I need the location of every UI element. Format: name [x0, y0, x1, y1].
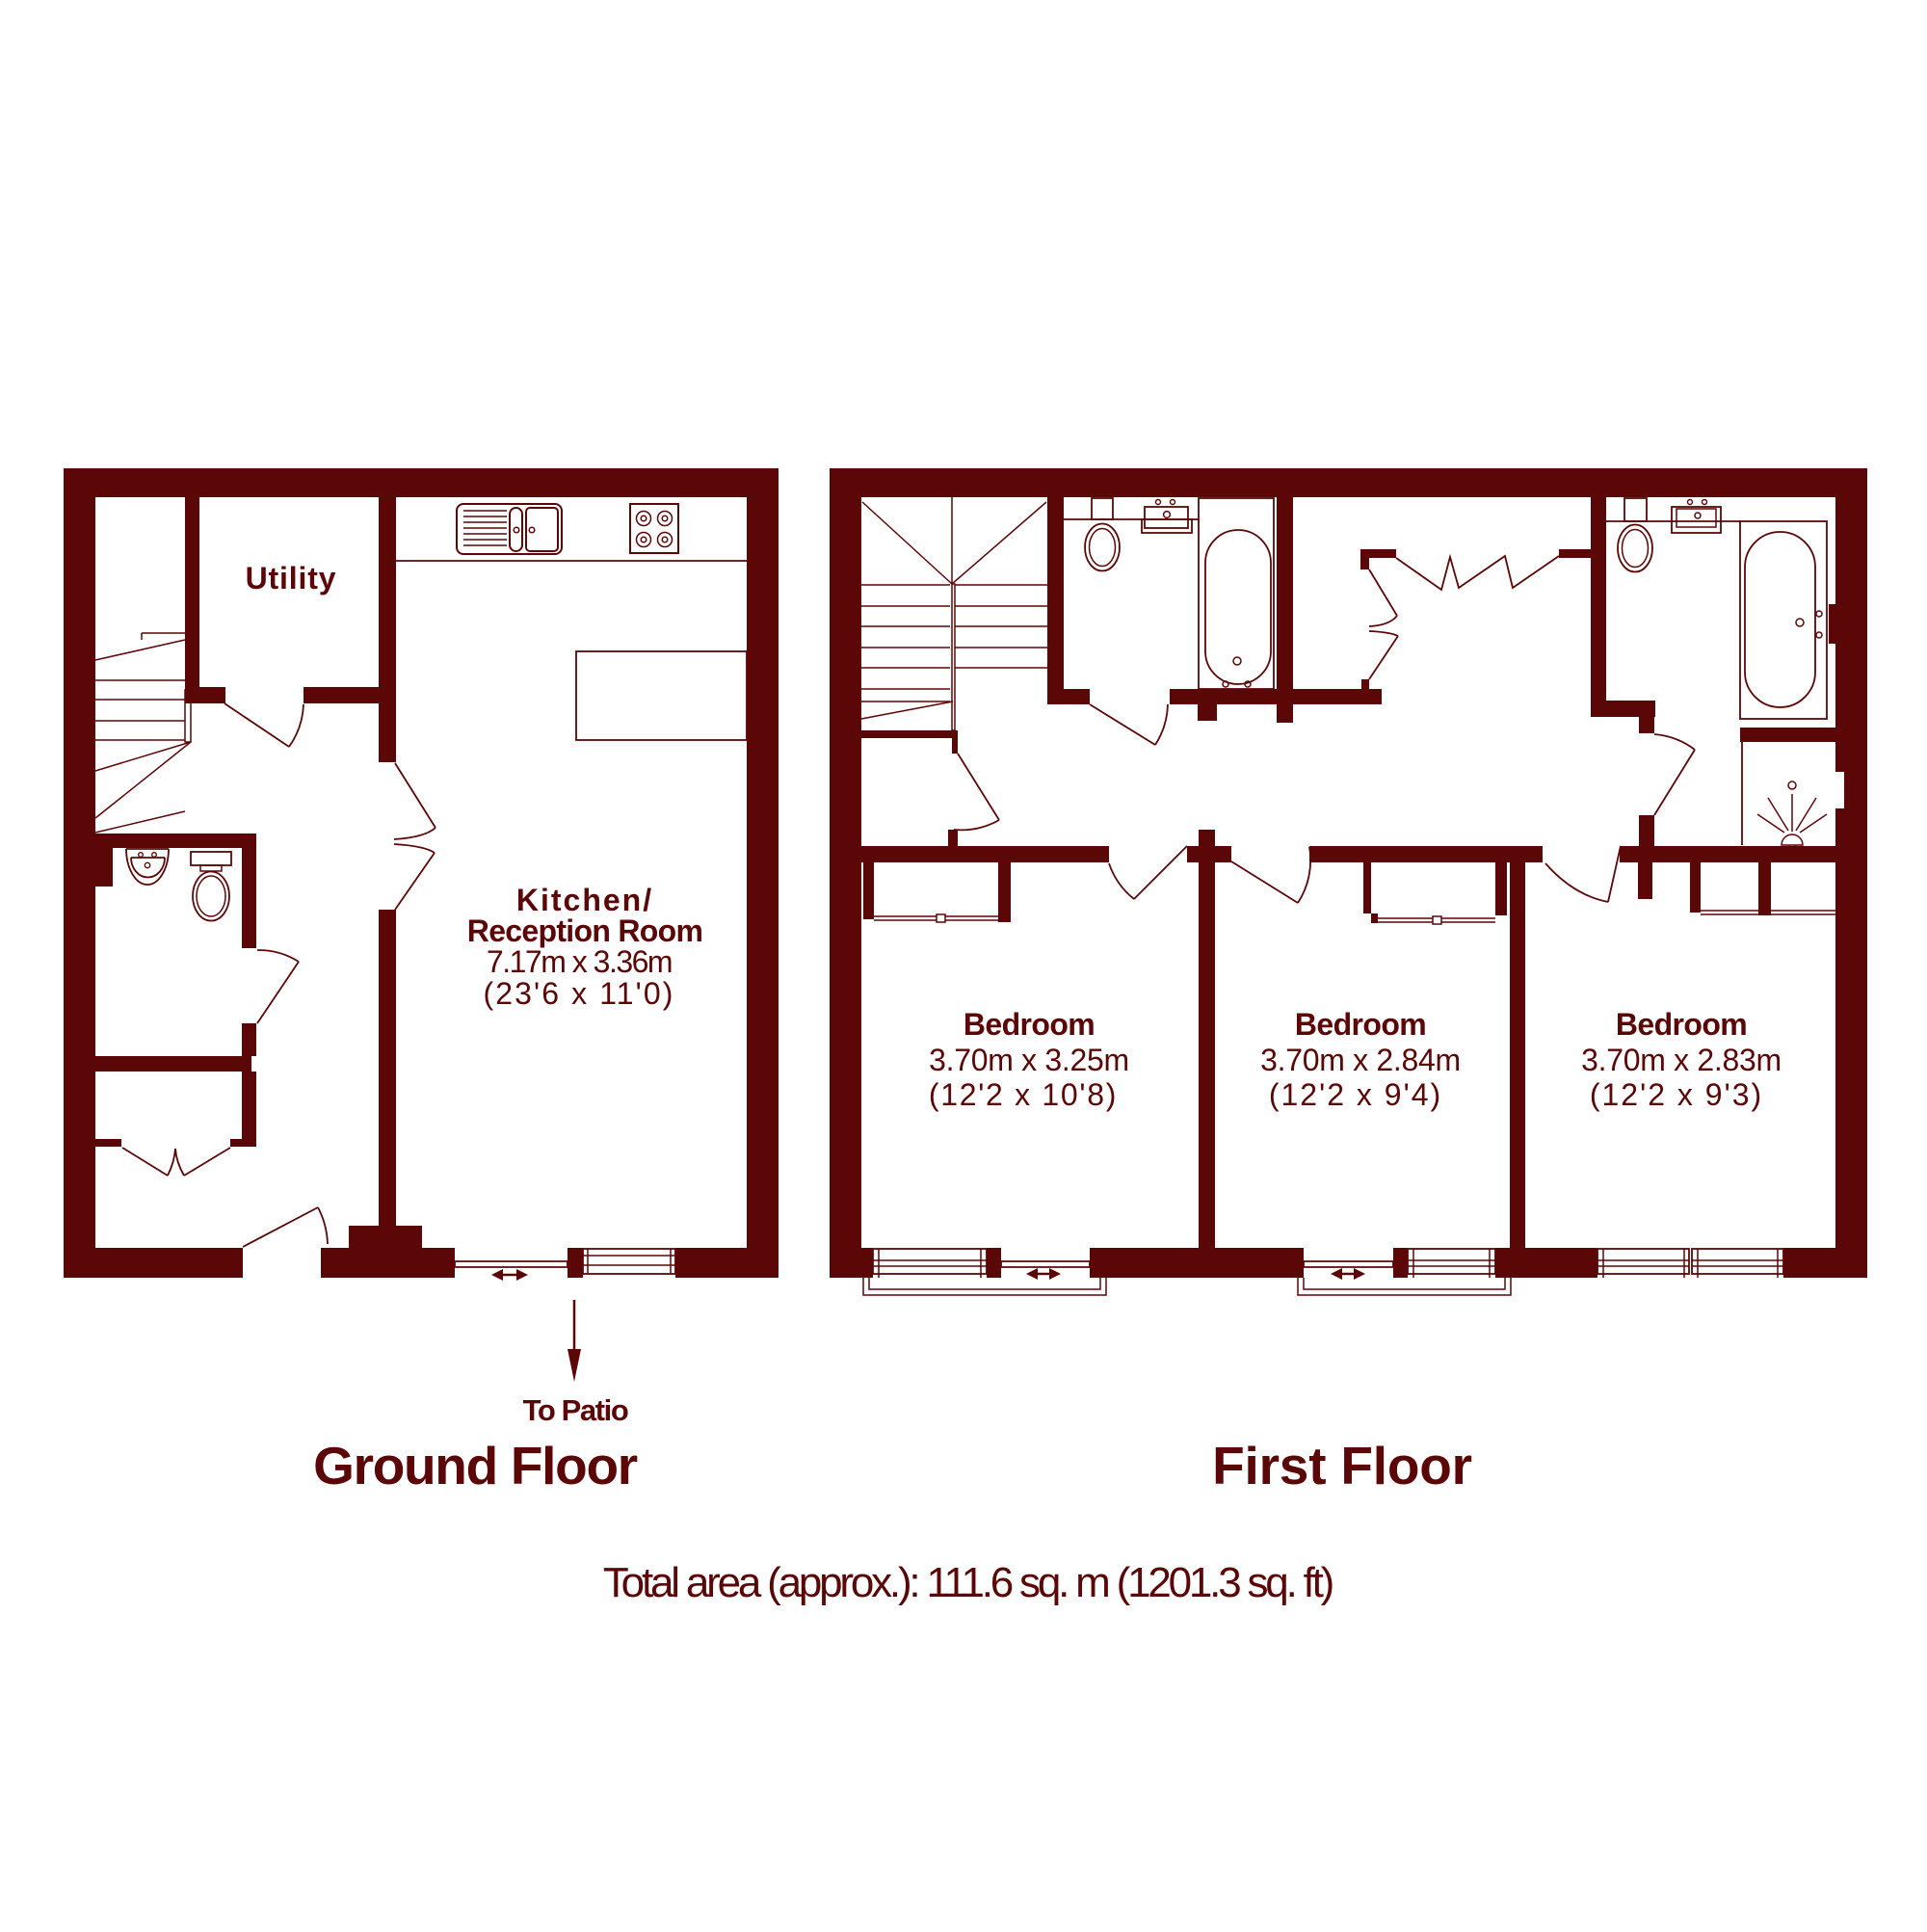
svg-text:To Patio: To Patio [523, 1393, 628, 1427]
svg-text:(12'2 x 9'3): (12'2 x 9'3) [1590, 1077, 1763, 1112]
svg-text:3.70m x 2.83m: 3.70m x 2.83m [1581, 1043, 1782, 1077]
svg-text:Reception Room: Reception Room [467, 913, 702, 948]
svg-text:7.17m x 3.36m: 7.17m x 3.36m [487, 944, 672, 979]
svg-text:Ground Floor: Ground Floor [313, 1436, 638, 1495]
svg-text:(23'6 x 11'0): (23'6 x 11'0) [483, 976, 674, 1011]
svg-text:First Floor: First Floor [1212, 1436, 1472, 1495]
svg-text:(12'2 x 10'8): (12'2 x 10'8) [929, 1077, 1118, 1112]
svg-text:(12'2 x 9'4): (12'2 x 9'4) [1269, 1077, 1442, 1112]
svg-text:3.70m x 2.84m: 3.70m x 2.84m [1260, 1043, 1461, 1077]
svg-text:Total area (approx.): 111.6 sq: Total area (approx.): 111.6 sq. m (1201.… [603, 1559, 1333, 1606]
svg-text:3.70m x 3.25m: 3.70m x 3.25m [929, 1043, 1129, 1077]
svg-text:Bedroom: Bedroom [963, 1007, 1095, 1042]
svg-text:Utility: Utility [246, 561, 337, 595]
svg-text:Kitchen/: Kitchen/ [516, 883, 653, 917]
svg-text:Bedroom: Bedroom [1616, 1007, 1747, 1042]
svg-text:Bedroom: Bedroom [1295, 1007, 1426, 1042]
